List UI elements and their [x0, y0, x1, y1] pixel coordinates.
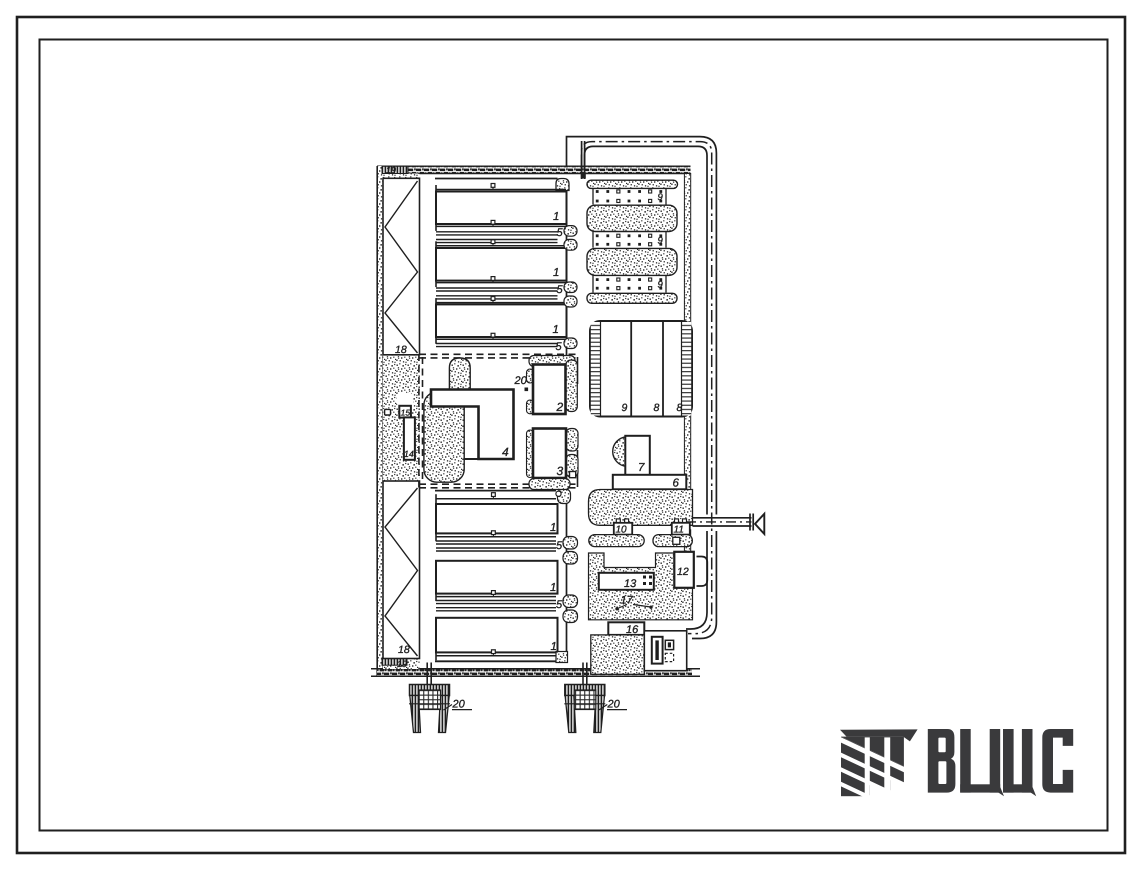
svg-text:9: 9	[658, 192, 664, 203]
svg-text:19: 19	[397, 659, 407, 669]
svg-text:9: 9	[658, 279, 664, 290]
svg-text:20: 20	[607, 699, 621, 711]
svg-text:5: 5	[556, 599, 563, 611]
svg-text:19: 19	[386, 165, 396, 175]
svg-text:15: 15	[401, 408, 411, 418]
svg-text:9: 9	[622, 402, 628, 414]
svg-text:18: 18	[398, 644, 410, 656]
svg-text:1: 1	[550, 582, 556, 594]
svg-text:1: 1	[553, 267, 559, 279]
svg-text:16: 16	[626, 624, 639, 636]
svg-text:10: 10	[616, 525, 628, 536]
svg-text:11: 11	[674, 525, 684, 536]
svg-text:5: 5	[556, 341, 563, 353]
svg-text:5: 5	[557, 227, 564, 239]
svg-text:4: 4	[502, 445, 509, 459]
svg-text:12: 12	[677, 566, 689, 578]
svg-text:5: 5	[556, 540, 563, 552]
svg-text:3: 3	[557, 464, 564, 478]
svg-text:8: 8	[677, 402, 683, 414]
svg-text:1: 1	[550, 522, 556, 534]
svg-text:1: 1	[553, 211, 559, 223]
svg-text:8: 8	[654, 402, 660, 414]
svg-text:2: 2	[556, 400, 564, 414]
svg-text:9: 9	[658, 236, 664, 247]
svg-text:13: 13	[624, 578, 637, 590]
svg-text:18: 18	[395, 344, 407, 356]
svg-text:5: 5	[557, 284, 564, 296]
svg-text:20: 20	[514, 375, 528, 387]
svg-text:6: 6	[673, 478, 680, 490]
svg-text:1: 1	[553, 324, 559, 336]
svg-text:7: 7	[638, 462, 645, 474]
svg-text:20: 20	[452, 699, 466, 711]
svg-text:1: 1	[551, 641, 557, 653]
svg-text:14: 14	[404, 449, 414, 459]
